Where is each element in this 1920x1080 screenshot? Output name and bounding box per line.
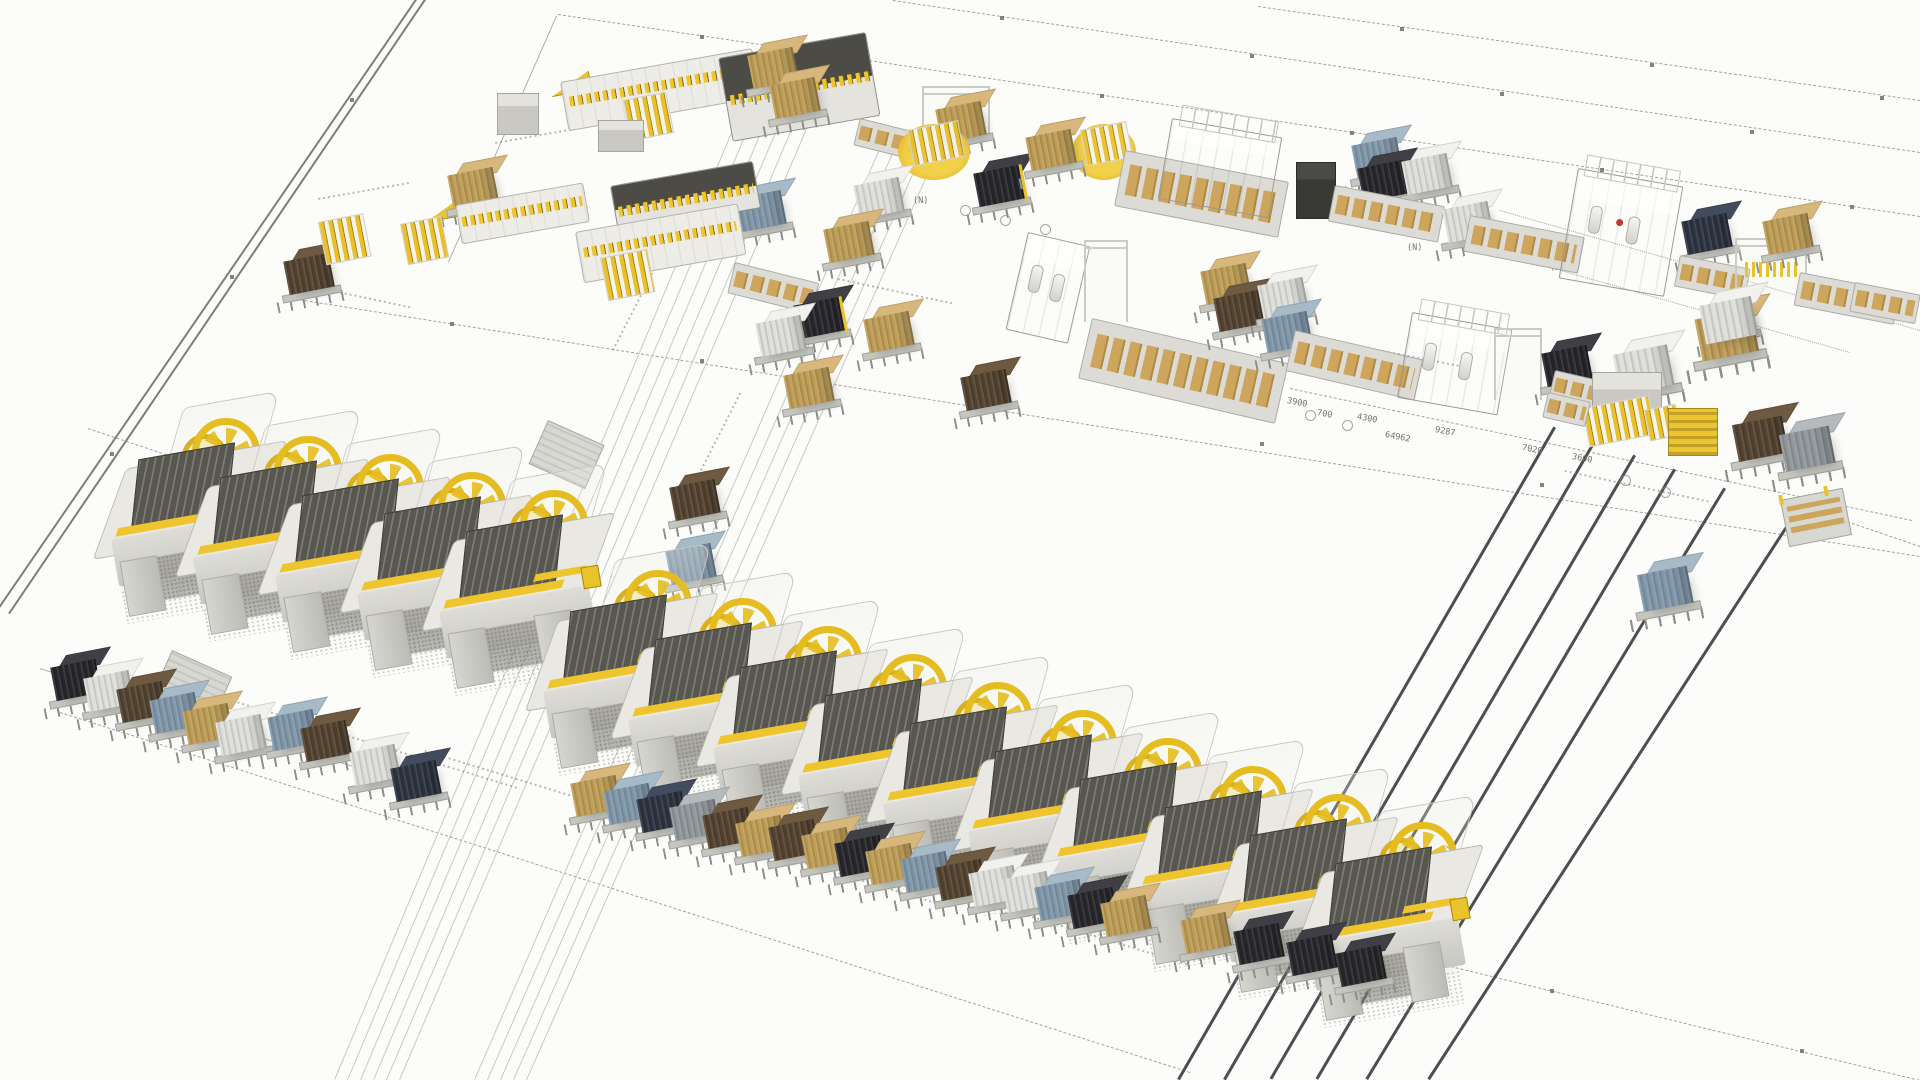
processing-machine (1559, 168, 1684, 297)
dimension-label: 9287 (1434, 425, 1456, 439)
pallet-stack-black (1236, 916, 1284, 972)
dimension-tick-marker (1250, 54, 1254, 58)
pallet-stack-white (218, 707, 266, 763)
gantry-crane (1084, 240, 1128, 322)
mold-rack (400, 216, 449, 265)
filter-cylinder (1421, 341, 1438, 371)
pallet-stack-tan (1103, 888, 1151, 944)
mold-rack (600, 249, 656, 301)
dimension-label: 700 (1316, 408, 1333, 421)
pallet-stack-navy (393, 753, 441, 809)
mold-rack (907, 120, 965, 166)
dimension-line (1258, 6, 1920, 101)
pallet-stack-tan (772, 70, 820, 126)
pallet-stack-tan (1028, 122, 1076, 178)
processing-machine (1006, 232, 1091, 344)
callout-circle (1342, 420, 1353, 431)
transfer-car (1668, 408, 1718, 456)
pallet-stack-white (1702, 288, 1757, 352)
dimension-tick-marker (1800, 1049, 1804, 1053)
pallet-stack-brown (963, 362, 1011, 418)
filter-cylinder (1587, 205, 1604, 235)
small-machine-unit (598, 120, 644, 152)
dimension-label: 3600 (1571, 452, 1593, 466)
pallet-stack-black (1338, 938, 1386, 994)
dimension-tick-marker (230, 275, 234, 279)
dimension-label: 64962 (1384, 430, 1411, 445)
dimension-tick-marker (1400, 27, 1404, 31)
small-machine-unit (497, 93, 539, 135)
brand-logo-dot (1616, 218, 1624, 226)
factory-layout-render: 39007004300649629287702036005950(N)(N)(N… (0, 0, 1920, 1080)
pallet-front-face (1699, 296, 1758, 344)
dimension-tick-marker (1850, 205, 1854, 209)
dimension-label: 4300 (1356, 412, 1378, 426)
illegible-annotation-text (318, 182, 412, 201)
dimension-tick-marker (350, 98, 354, 102)
pallet-stack-tan (786, 360, 834, 416)
dimension-tick-marker (1540, 483, 1544, 487)
illegible-annotation-text (700, 390, 743, 471)
dimension-tick-marker (1650, 63, 1654, 67)
callout-circle (1305, 410, 1316, 421)
control-box (1449, 897, 1471, 922)
dimension-tick-marker (1500, 92, 1504, 96)
pallet-stack-black (1289, 927, 1337, 983)
callout-circle (1660, 487, 1671, 498)
dimension-label: (N) (1407, 243, 1422, 253)
pallet-stack-blue (1640, 558, 1693, 620)
filter-cylinder (1027, 264, 1045, 294)
dimension-tick-marker (1550, 989, 1554, 993)
roof-frame (1584, 154, 1681, 192)
pallet-stack-navy (1684, 206, 1732, 262)
dimension-tick-marker (1750, 130, 1754, 134)
dimension-tick-marker (1000, 16, 1004, 20)
dimension-tick-marker (1100, 94, 1104, 98)
filter-cylinder (1457, 351, 1474, 381)
pallet-stack-black (976, 158, 1024, 214)
illegible-annotation-text (1565, 470, 1712, 504)
callout-circle (1040, 224, 1051, 235)
pallet-stack-tan (826, 214, 874, 270)
pallet-stack-tan (866, 304, 914, 360)
mold-rack (318, 213, 372, 265)
pallet-stack-tan (1765, 206, 1813, 262)
dimension-tick-marker (450, 322, 454, 326)
gantry-crane (1494, 328, 1542, 400)
pallet-stack-gray (1782, 418, 1835, 480)
dimension-label: (N) (913, 196, 928, 206)
filter-cylinder (1624, 216, 1641, 246)
dimension-tick-marker (700, 359, 704, 363)
pallet-stack-tan (1183, 905, 1231, 961)
illegible-annotation-text (838, 278, 956, 305)
pallet-stack-brown (303, 713, 351, 769)
filter-cylinder (1048, 273, 1066, 303)
rail-line (1428, 511, 1798, 1080)
dimension-label: 7020 (1521, 443, 1543, 457)
dimension-tick-marker (1880, 96, 1884, 100)
dimension-tick-marker (700, 35, 704, 39)
roof-frame (1178, 105, 1279, 144)
flat-rail-cart (1780, 488, 1852, 547)
dimension-label: 3900 (1286, 396, 1308, 410)
callout-circle (1620, 475, 1631, 486)
dimension-tick-marker (1260, 442, 1264, 446)
pallet-stack-white (758, 308, 806, 364)
pallet-stack-brown (672, 472, 720, 528)
